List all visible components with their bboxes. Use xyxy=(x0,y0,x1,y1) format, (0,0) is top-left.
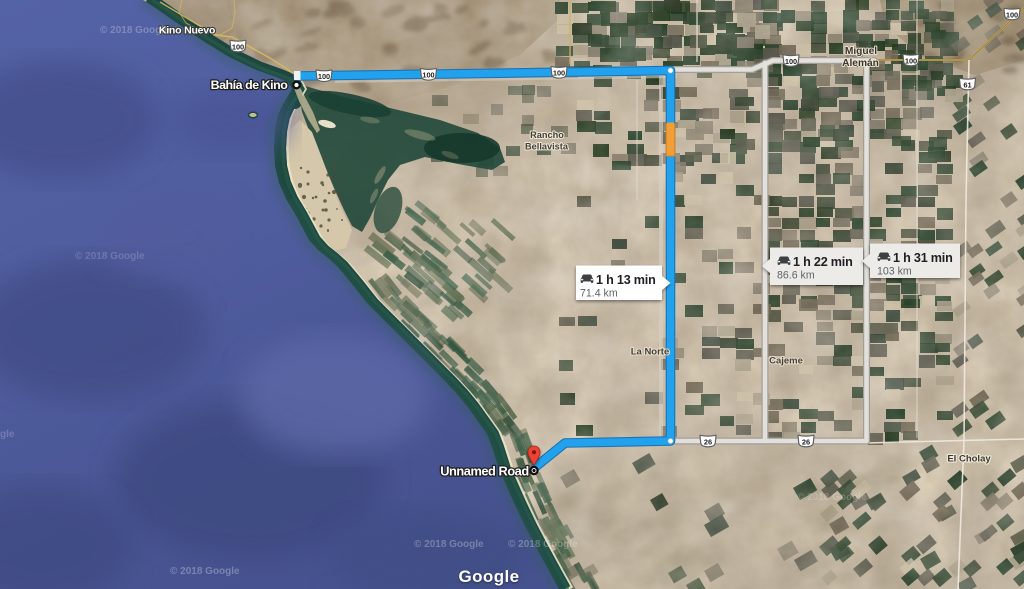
svg-text:100: 100 xyxy=(553,69,565,78)
svg-text:Bellavista: Bellavista xyxy=(525,142,569,152)
svg-text:26: 26 xyxy=(802,437,810,446)
svg-text:61: 61 xyxy=(963,80,971,89)
svg-text:1 h 31 min: 1 h 31 min xyxy=(893,251,953,265)
svg-text:1 h 22 min: 1 h 22 min xyxy=(793,255,853,269)
svg-text:100: 100 xyxy=(1006,10,1018,19)
svg-text:© 2018 Google: © 2018 Google xyxy=(414,539,484,550)
svg-text:71.4 km: 71.4 km xyxy=(580,288,618,300)
svg-text:© 2018 Google: © 2018 Google xyxy=(797,492,867,503)
svg-text:© 2018 Google: © 2018 Google xyxy=(508,539,578,550)
svg-text:103 km: 103 km xyxy=(877,266,912,278)
svg-text:Rancho: Rancho xyxy=(530,130,564,140)
svg-text:Alemán: Alemán xyxy=(842,58,879,69)
svg-text:86.6 km: 86.6 km xyxy=(777,270,815,282)
svg-text:26: 26 xyxy=(704,437,712,446)
svg-text:© 2018 Google: © 2018 Google xyxy=(100,25,170,36)
svg-text:100: 100 xyxy=(318,72,330,81)
svg-text:Google: Google xyxy=(459,567,520,586)
svg-text:100: 100 xyxy=(905,56,917,65)
svg-text:Bahía de Kino: Bahía de Kino xyxy=(211,78,289,92)
svg-text:La Norte: La Norte xyxy=(631,347,670,358)
svg-text:gle: gle xyxy=(0,429,15,440)
svg-text:Miguel: Miguel xyxy=(845,46,877,57)
svg-text:100: 100 xyxy=(232,42,244,51)
svg-text:Unnamed Road: Unnamed Road xyxy=(440,464,528,479)
svg-text:1 h 13 min: 1 h 13 min xyxy=(596,273,656,287)
svg-text:© 2018 Google: © 2018 Google xyxy=(75,251,145,262)
svg-text:100: 100 xyxy=(785,57,797,66)
svg-text:Cajeme: Cajeme xyxy=(769,356,803,367)
svg-text:El Cholay: El Cholay xyxy=(947,454,991,465)
svg-text:100: 100 xyxy=(422,71,434,80)
svg-text:© 2018 Google: © 2018 Google xyxy=(170,566,240,577)
